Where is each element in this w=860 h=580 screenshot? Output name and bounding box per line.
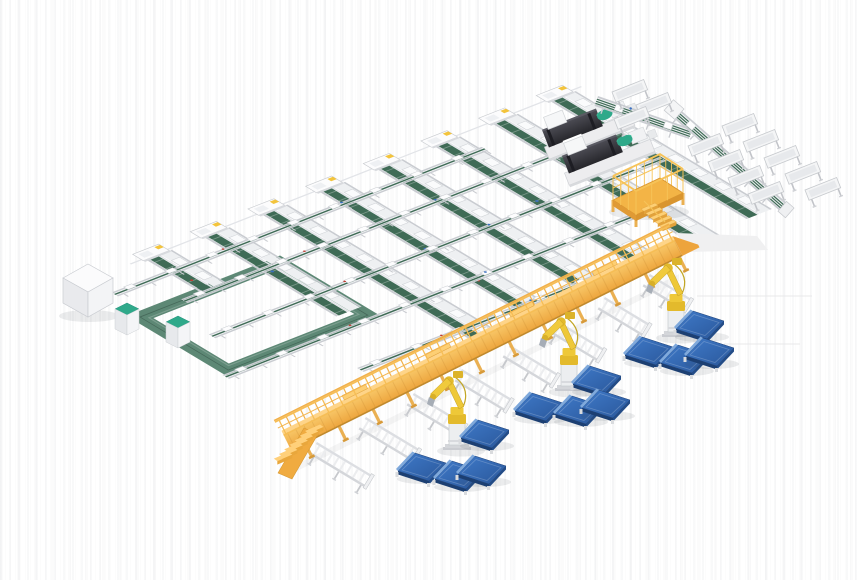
production-line-render: [0, 0, 860, 580]
electrical-cabinet: [59, 264, 119, 322]
tray-stand: [805, 178, 844, 209]
floor-line: [697, 296, 812, 297]
blue-panel: [456, 455, 512, 491]
scene-root: [59, 80, 844, 497]
scene-svg: [0, 0, 860, 580]
control-cabinet: [115, 303, 139, 335]
conveyor-loop: [140, 262, 368, 370]
control-cabinet: [166, 316, 190, 348]
floor-line: [724, 344, 800, 345]
